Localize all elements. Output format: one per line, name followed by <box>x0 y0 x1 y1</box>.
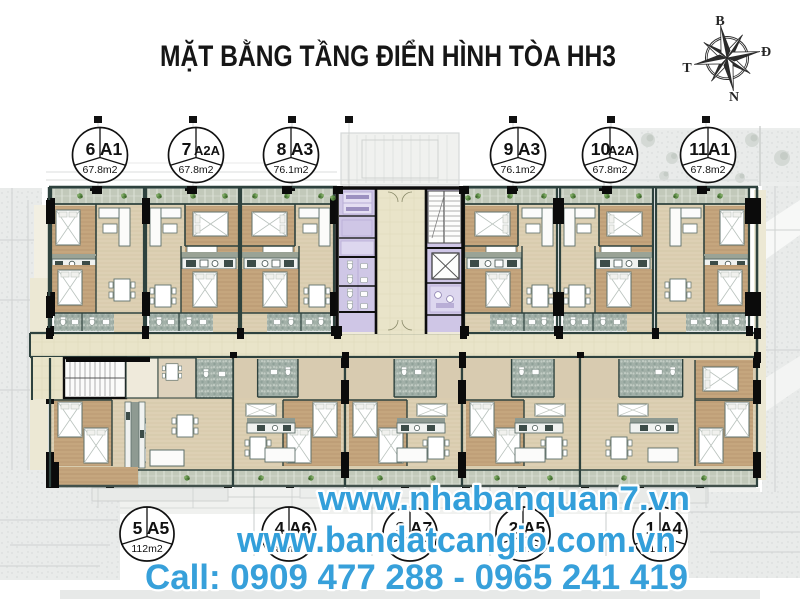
svg-text:6: 6 <box>86 139 96 159</box>
svg-text:5: 5 <box>133 518 143 538</box>
svg-text:A3: A3 <box>291 139 314 159</box>
svg-text:8: 8 <box>277 139 287 159</box>
svg-text:A1: A1 <box>100 139 123 159</box>
svg-text:76.1m2: 76.1m2 <box>500 164 535 176</box>
svg-text:Đ: Đ <box>761 45 771 60</box>
svg-text:T: T <box>682 61 692 76</box>
svg-text:www.bandatcangio.com.vn: www.bandatcangio.com.vn <box>236 519 676 560</box>
svg-text:67.8m2: 67.8m2 <box>592 164 627 176</box>
svg-text:7: 7 <box>182 139 192 159</box>
svg-text:67.8m2: 67.8m2 <box>82 164 117 176</box>
svg-text:9: 9 <box>504 139 514 159</box>
svg-text:67.8m2: 67.8m2 <box>690 164 725 176</box>
svg-text:11: 11 <box>689 139 708 159</box>
svg-text:112m2: 112m2 <box>131 543 162 555</box>
svg-text:MẶT BẰNG TẦNG ĐIỂN HÌNH TÒA HH: MẶT BẰNG TẦNG ĐIỂN HÌNH TÒA HH3 <box>160 39 616 73</box>
svg-text:76.1m2: 76.1m2 <box>273 164 308 176</box>
svg-text:N: N <box>729 90 739 105</box>
svg-text:A3: A3 <box>518 139 541 159</box>
svg-text:Call: 0909 477 288 - 0965 241: Call: 0909 477 288 - 0965 241 419 <box>145 558 688 597</box>
svg-text:www.nhabanquan7.vn: www.nhabanquan7.vn <box>317 480 690 518</box>
svg-text:A5: A5 <box>147 518 170 538</box>
svg-text:67.8m2: 67.8m2 <box>178 164 213 176</box>
svg-text:A2A: A2A <box>608 143 635 158</box>
svg-text:B: B <box>715 14 724 29</box>
svg-text:A2A: A2A <box>194 143 221 158</box>
svg-text:A1: A1 <box>708 139 731 159</box>
